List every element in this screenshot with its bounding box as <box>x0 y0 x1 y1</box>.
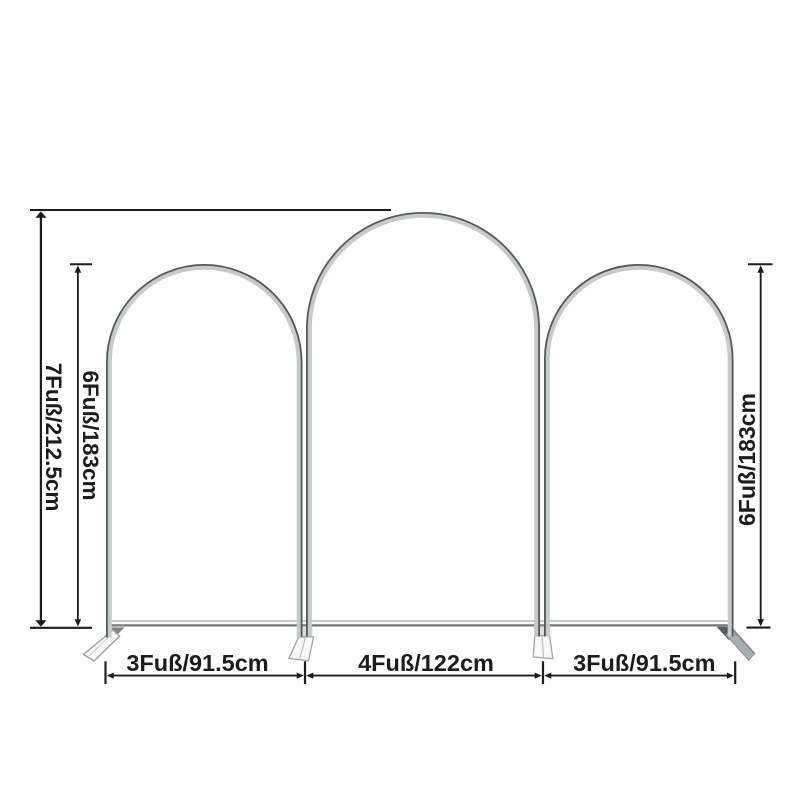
svg-text:6Fuß/183cm: 6Fuß/183cm <box>734 393 760 526</box>
svg-text:4Fuß/122cm: 4Fuß/122cm <box>358 650 494 676</box>
svg-text:7Fuß/212.5cm: 7Fuß/212.5cm <box>41 363 66 512</box>
svg-text:3Fuß/91.5cm: 3Fuß/91.5cm <box>126 650 268 676</box>
svg-text:3Fuß/91.5cm: 3Fuß/91.5cm <box>573 650 715 676</box>
svg-text:6Fuß/183cm: 6Fuß/183cm <box>78 370 103 500</box>
